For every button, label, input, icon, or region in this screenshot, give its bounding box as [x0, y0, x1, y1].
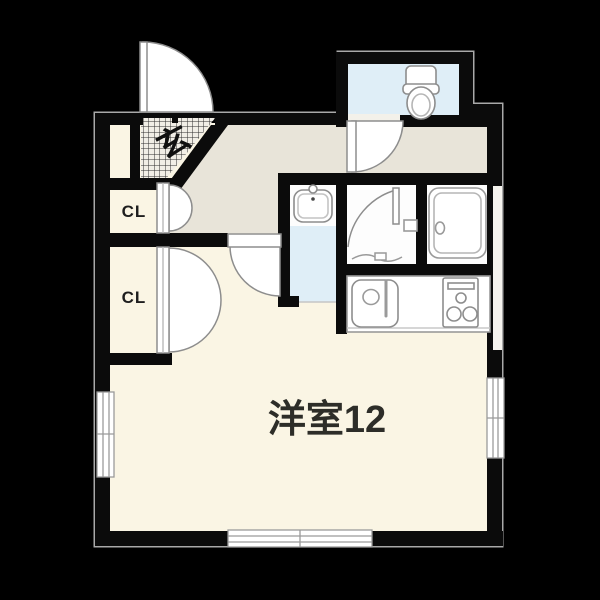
floor-plan-canvas: 玄 CL CL 洋室12 — [0, 0, 600, 600]
closet-lower-label: CL — [122, 288, 147, 307]
kitchen-sink-icon — [352, 280, 398, 327]
wall-shoe-divider — [130, 125, 140, 181]
right-wall-pipe-space — [493, 186, 502, 350]
stove-icon — [443, 278, 478, 327]
wall-closet-bottom-stub — [100, 353, 172, 365]
kitchen-counter — [347, 276, 490, 332]
wall-closet-mid — [108, 233, 228, 247]
window-left-icon — [97, 392, 114, 477]
wall-kitchen — [336, 264, 502, 276]
bath-shelf — [404, 220, 417, 231]
entrance-threshold — [143, 113, 216, 118]
closet-upper-label: CL — [122, 202, 147, 221]
wall-washbasin-east — [336, 185, 347, 334]
wall-washbasin-stub — [278, 296, 299, 307]
wall-top-left — [95, 113, 143, 125]
bath-door-handle — [375, 253, 386, 260]
bathtub-icon — [429, 188, 486, 258]
wall-top-mid — [215, 113, 338, 125]
wall-left — [95, 113, 110, 546]
toilet-icon — [403, 66, 439, 119]
wall-toilet-top — [336, 52, 473, 64]
washbasin-icon — [294, 185, 332, 222]
window-right-icon — [487, 378, 504, 458]
wall-hall-south — [278, 173, 502, 185]
wall-step-connector — [459, 104, 502, 116]
bath-door-leaf — [393, 188, 399, 224]
washbasin-room-floor — [289, 226, 337, 302]
window-bottom-icon — [228, 530, 372, 547]
room-door-leaf — [228, 234, 281, 247]
floor-plan-svg: 玄 CL CL 洋室12 — [0, 0, 600, 600]
entrance-door-leaf — [140, 42, 147, 112]
wall-toilet-left — [336, 64, 348, 127]
main-room-label: 洋室12 — [268, 398, 386, 441]
toilet-door-leaf — [347, 121, 356, 172]
